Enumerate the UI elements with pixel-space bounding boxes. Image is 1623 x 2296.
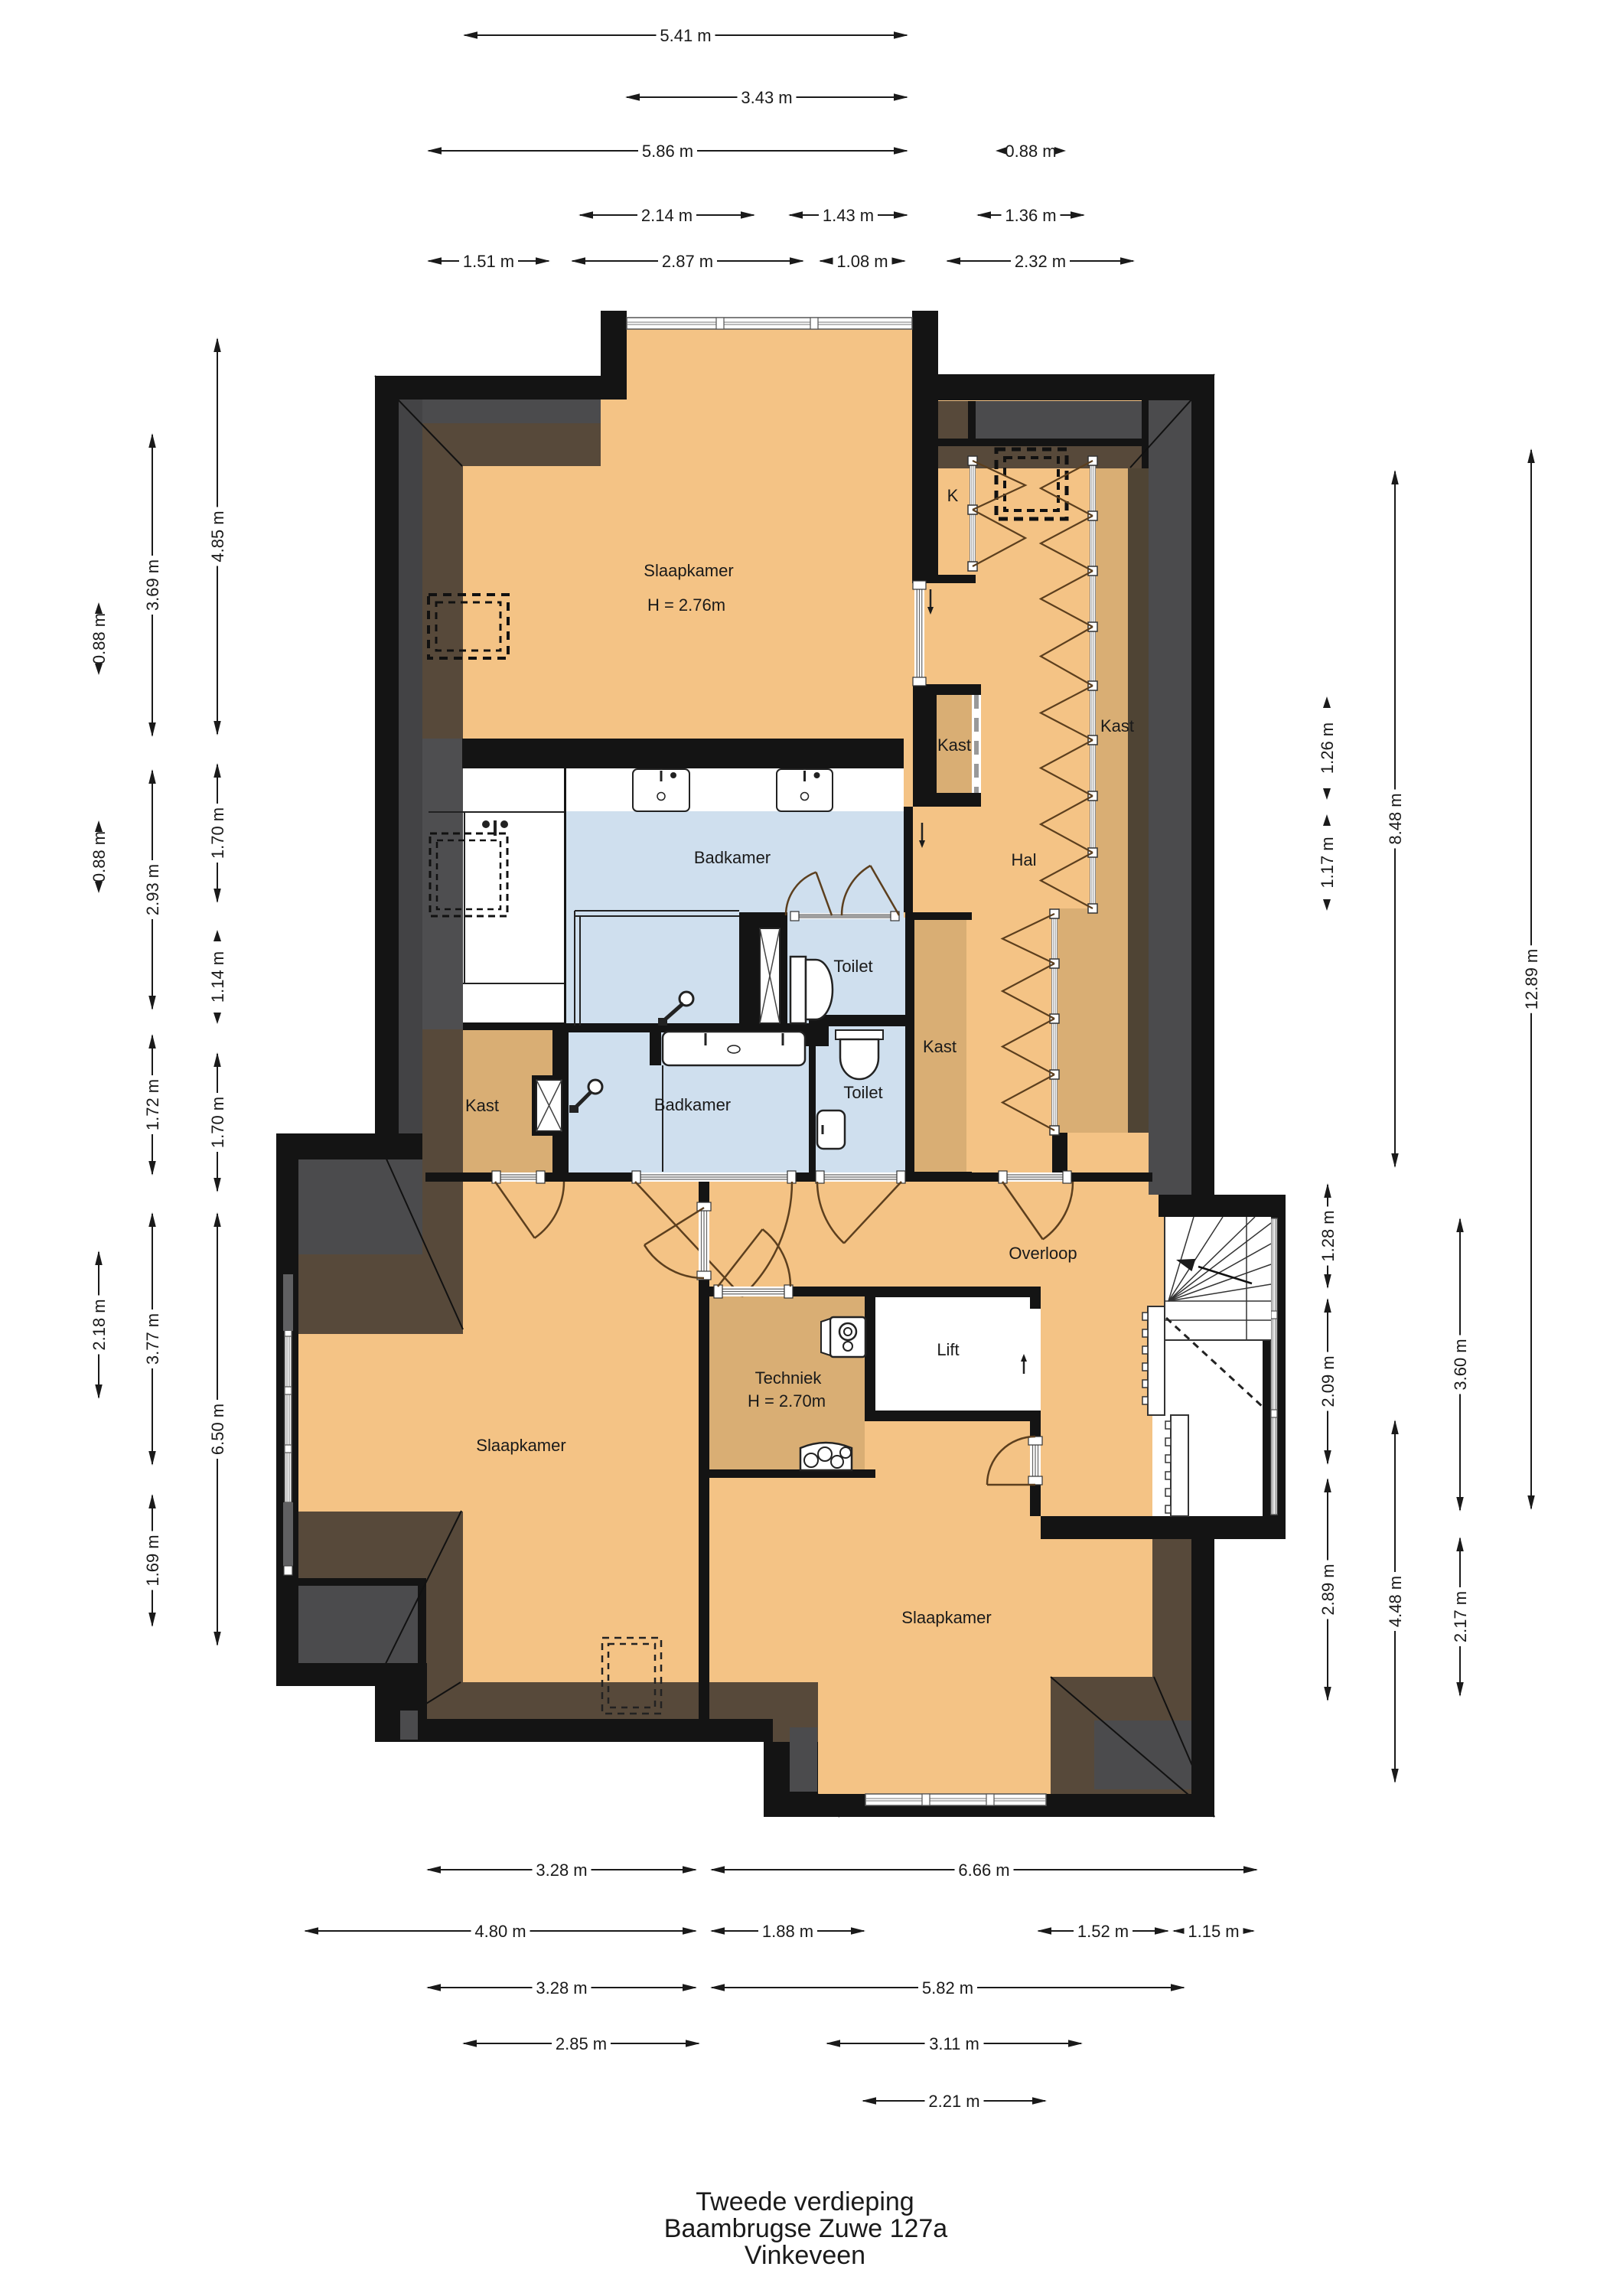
- svg-text:3.77 m: 3.77 m: [143, 1313, 162, 1365]
- svg-text:8.48 m: 8.48 m: [1386, 793, 1405, 844]
- svg-text:Kast: Kast: [465, 1096, 499, 1115]
- svg-text:K: K: [947, 486, 959, 505]
- svg-text:1.43 m: 1.43 m: [823, 206, 874, 225]
- svg-text:1.52 m: 1.52 m: [1077, 1922, 1129, 1941]
- svg-text:1.26 m: 1.26 m: [1318, 722, 1337, 774]
- svg-text:Kast: Kast: [937, 735, 971, 755]
- svg-text:1.70 m: 1.70 m: [208, 807, 227, 859]
- svg-text:Overloop: Overloop: [1009, 1244, 1077, 1263]
- svg-text:6.50 m: 6.50 m: [208, 1404, 227, 1455]
- svg-text:2.85 m: 2.85 m: [556, 2034, 607, 2053]
- svg-text:1.15 m: 1.15 m: [1188, 1922, 1239, 1941]
- svg-text:3.28 m: 3.28 m: [536, 1861, 587, 1880]
- svg-text:Baambrugse Zuwe 127a: Baambrugse Zuwe 127a: [664, 2214, 948, 2243]
- svg-text:Kast: Kast: [923, 1037, 957, 1056]
- svg-text:Badkamer: Badkamer: [694, 848, 771, 867]
- svg-text:3.43 m: 3.43 m: [741, 88, 792, 107]
- svg-text:Lift: Lift: [937, 1340, 959, 1359]
- svg-text:0.88 m: 0.88 m: [1005, 142, 1056, 161]
- svg-text:2.17 m: 2.17 m: [1451, 1591, 1470, 1642]
- svg-text:2.32 m: 2.32 m: [1015, 252, 1066, 271]
- svg-text:Tweede verdieping: Tweede verdieping: [696, 2187, 914, 2216]
- svg-text:3.60 m: 3.60 m: [1451, 1339, 1470, 1390]
- svg-text:Slaapkamer: Slaapkamer: [476, 1436, 565, 1455]
- svg-text:2.14 m: 2.14 m: [641, 206, 693, 225]
- svg-text:2.09 m: 2.09 m: [1318, 1355, 1338, 1407]
- svg-text:2.21 m: 2.21 m: [928, 2092, 979, 2111]
- svg-text:Techniek: Techniek: [755, 1368, 823, 1388]
- svg-text:1.17 m: 1.17 m: [1318, 837, 1337, 888]
- svg-text:6.66 m: 6.66 m: [958, 1861, 1009, 1880]
- svg-text:3.69 m: 3.69 m: [143, 559, 162, 611]
- svg-text:5.86 m: 5.86 m: [642, 142, 693, 161]
- svg-text:4.80 m: 4.80 m: [474, 1922, 526, 1941]
- svg-text:12.89 m: 12.89 m: [1522, 949, 1541, 1010]
- svg-text:Toilet: Toilet: [833, 957, 872, 976]
- svg-text:1.51 m: 1.51 m: [463, 252, 514, 271]
- svg-text:Kast: Kast: [1100, 716, 1134, 735]
- svg-text:1.08 m: 1.08 m: [836, 252, 888, 271]
- svg-text:5.41 m: 5.41 m: [660, 26, 711, 45]
- svg-text:5.82 m: 5.82 m: [922, 1978, 973, 1998]
- svg-text:1.70 m: 1.70 m: [208, 1097, 227, 1148]
- svg-text:H = 2.70m: H = 2.70m: [748, 1391, 826, 1411]
- svg-text:1.88 m: 1.88 m: [762, 1922, 813, 1941]
- svg-text:2.87 m: 2.87 m: [662, 252, 713, 271]
- svg-text:Toilet: Toilet: [843, 1083, 882, 1102]
- svg-text:0.88 m: 0.88 m: [90, 831, 109, 882]
- svg-text:4.85 m: 4.85 m: [208, 510, 227, 562]
- svg-text:Hal: Hal: [1011, 850, 1036, 869]
- svg-text:2.89 m: 2.89 m: [1318, 1564, 1338, 1615]
- svg-text:3.28 m: 3.28 m: [536, 1978, 587, 1998]
- svg-text:2.18 m: 2.18 m: [90, 1299, 109, 1350]
- svg-text:Badkamer: Badkamer: [654, 1095, 731, 1114]
- svg-text:H = 2.76m: H = 2.76m: [647, 595, 725, 615]
- svg-text:0.88 m: 0.88 m: [90, 613, 109, 664]
- svg-text:Slaapkamer: Slaapkamer: [901, 1608, 991, 1627]
- svg-text:1.69 m: 1.69 m: [143, 1534, 162, 1586]
- svg-text:1.36 m: 1.36 m: [1005, 206, 1056, 225]
- svg-text:1.28 m: 1.28 m: [1318, 1210, 1338, 1261]
- svg-text:1.14 m: 1.14 m: [208, 951, 227, 1003]
- svg-text:3.11 m: 3.11 m: [929, 2034, 979, 2053]
- svg-text:2.93 m: 2.93 m: [143, 864, 162, 915]
- svg-text:1.72 m: 1.72 m: [143, 1079, 162, 1130]
- svg-text:Vinkeveen: Vinkeveen: [745, 2241, 865, 2270]
- svg-text:4.48 m: 4.48 m: [1386, 1576, 1405, 1627]
- svg-text:Slaapkamer: Slaapkamer: [644, 561, 733, 580]
